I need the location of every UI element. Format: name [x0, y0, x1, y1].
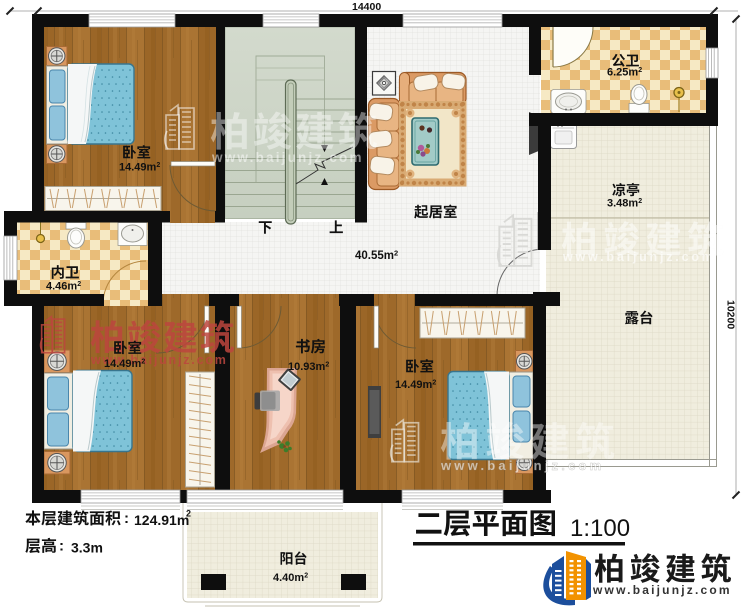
svg-text:40.55m2: 40.55m2	[355, 249, 398, 263]
svg-text:124.91m: 124.91m	[134, 512, 189, 528]
svg-text:6.25m2: 6.25m2	[607, 67, 642, 79]
svg-text::: :	[124, 510, 129, 527]
svg-text:3.48m2: 3.48m2	[607, 198, 642, 210]
svg-text:3.3m: 3.3m	[71, 540, 103, 556]
svg-text:10.93m2: 10.93m2	[288, 361, 329, 373]
svg-text:14.49m2: 14.49m2	[395, 379, 436, 391]
svg-text:1:100: 1:100	[570, 515, 630, 542]
svg-text:14.49m2: 14.49m2	[119, 162, 160, 174]
svg-text:4.46m2: 4.46m2	[46, 281, 81, 293]
svg-text:14400: 14400	[352, 1, 381, 13]
svg-text:www.baijunjz.com: www.baijunjz.com	[592, 583, 732, 597]
svg-text:10200: 10200	[725, 300, 737, 329]
svg-text:14.49m2: 14.49m2	[104, 358, 145, 370]
svg-text:www.baijunjz.com: www.baijunjz.com	[440, 458, 604, 473]
svg-text:www.baijunjz.com: www.baijunjz.com	[562, 250, 716, 264]
svg-text:4.40m2: 4.40m2	[273, 572, 308, 584]
svg-text:2: 2	[186, 509, 191, 519]
svg-text:www.baijunjz.com: www.baijunjz.com	[211, 150, 364, 165]
svg-text::: :	[59, 538, 64, 555]
